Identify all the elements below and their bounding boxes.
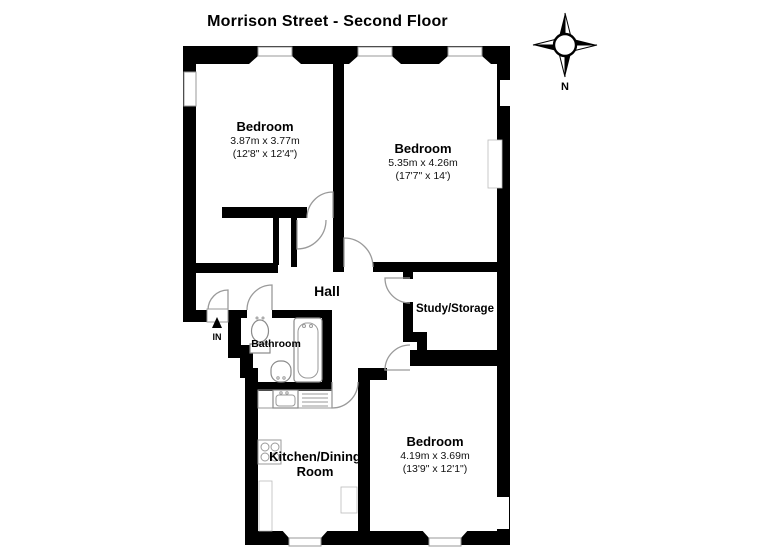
wall (403, 302, 413, 332)
door-arc-study (385, 278, 410, 303)
wall (410, 350, 510, 366)
window (448, 47, 482, 56)
window-reveal (249, 56, 301, 64)
room-name: Kitchen/Dining (269, 449, 361, 464)
wall-recess (500, 80, 510, 106)
door-arc-bathroom (247, 285, 272, 310)
compass-north-label: N (561, 81, 569, 93)
window (358, 47, 392, 56)
wall (373, 262, 497, 272)
room-name: Room (297, 464, 334, 479)
toilet-icon (262, 317, 264, 319)
room-label-study: Study/Storage (416, 303, 494, 315)
wall (497, 46, 510, 545)
wall (222, 207, 307, 218)
toilet-icon (256, 317, 258, 319)
room-name: Bedroom (394, 141, 451, 156)
door-arc-bedroom-bottom (385, 345, 410, 370)
door-arc-hall-cupboard (297, 220, 326, 249)
stove-burner-icon (261, 443, 269, 451)
floorplan-page: Morrison Street - Second Floor (0, 0, 768, 558)
wall (241, 310, 247, 318)
wall (333, 62, 344, 272)
door-arc-entrance (208, 290, 228, 310)
room-dims-imperial: (12'8" x 12'4") (233, 148, 298, 160)
cupboard-outline (259, 481, 272, 531)
entrance-label: IN (213, 332, 222, 342)
window (258, 47, 292, 56)
window (184, 72, 196, 106)
room-dims-metric: 3.87m x 3.77m (230, 135, 300, 147)
window-reveal (349, 56, 401, 64)
press-outline (488, 140, 502, 188)
door-arc-kitchen (332, 382, 358, 408)
wall (291, 218, 297, 267)
window (289, 538, 321, 546)
cupboard-outline (341, 487, 357, 513)
room-dims-imperial: (13'9" x 12'1") (403, 463, 468, 475)
room-label-bedroom-top-right: Bedroom 5.35m x 4.26m (17'7" x 14') (388, 141, 458, 182)
wall (322, 310, 332, 384)
stove-burner-icon (261, 453, 269, 461)
room-label-kitchen: Kitchen/Dining Room (269, 449, 361, 479)
room-label-bathroom: Bathroom (251, 338, 301, 350)
wall (196, 263, 278, 273)
wall (228, 310, 241, 358)
window (429, 538, 461, 546)
door-arc-bedroom-top-right (344, 238, 373, 267)
wall (273, 213, 279, 265)
washbasin-icon (271, 361, 291, 382)
room-name: Bedroom (406, 434, 463, 449)
room-dims-imperial: (17'7" x 14') (395, 170, 450, 182)
room-name: Bedroom (236, 119, 293, 134)
floorplan-drawing: IN (0, 0, 768, 558)
room-label-bedroom-top-left: Bedroom 3.87m x 3.77m (12'8" x 12'4") (230, 119, 300, 160)
entrance: IN (207, 309, 228, 342)
wall (196, 310, 208, 322)
room-label-bedroom-bottom: Bedroom 4.19m x 3.69m (13'9" x 12'1") (400, 434, 470, 475)
window-reveal (439, 56, 491, 64)
room-dims-metric: 4.19m x 3.69m (400, 450, 470, 462)
wall (245, 368, 258, 534)
wall-recess (497, 497, 509, 529)
room-label-hall: Hall (314, 283, 340, 299)
compass-rose-icon: N (533, 13, 597, 93)
door-arc-bedroom-top-left (307, 192, 333, 218)
room-dims-metric: 5.35m x 4.26m (388, 157, 458, 169)
